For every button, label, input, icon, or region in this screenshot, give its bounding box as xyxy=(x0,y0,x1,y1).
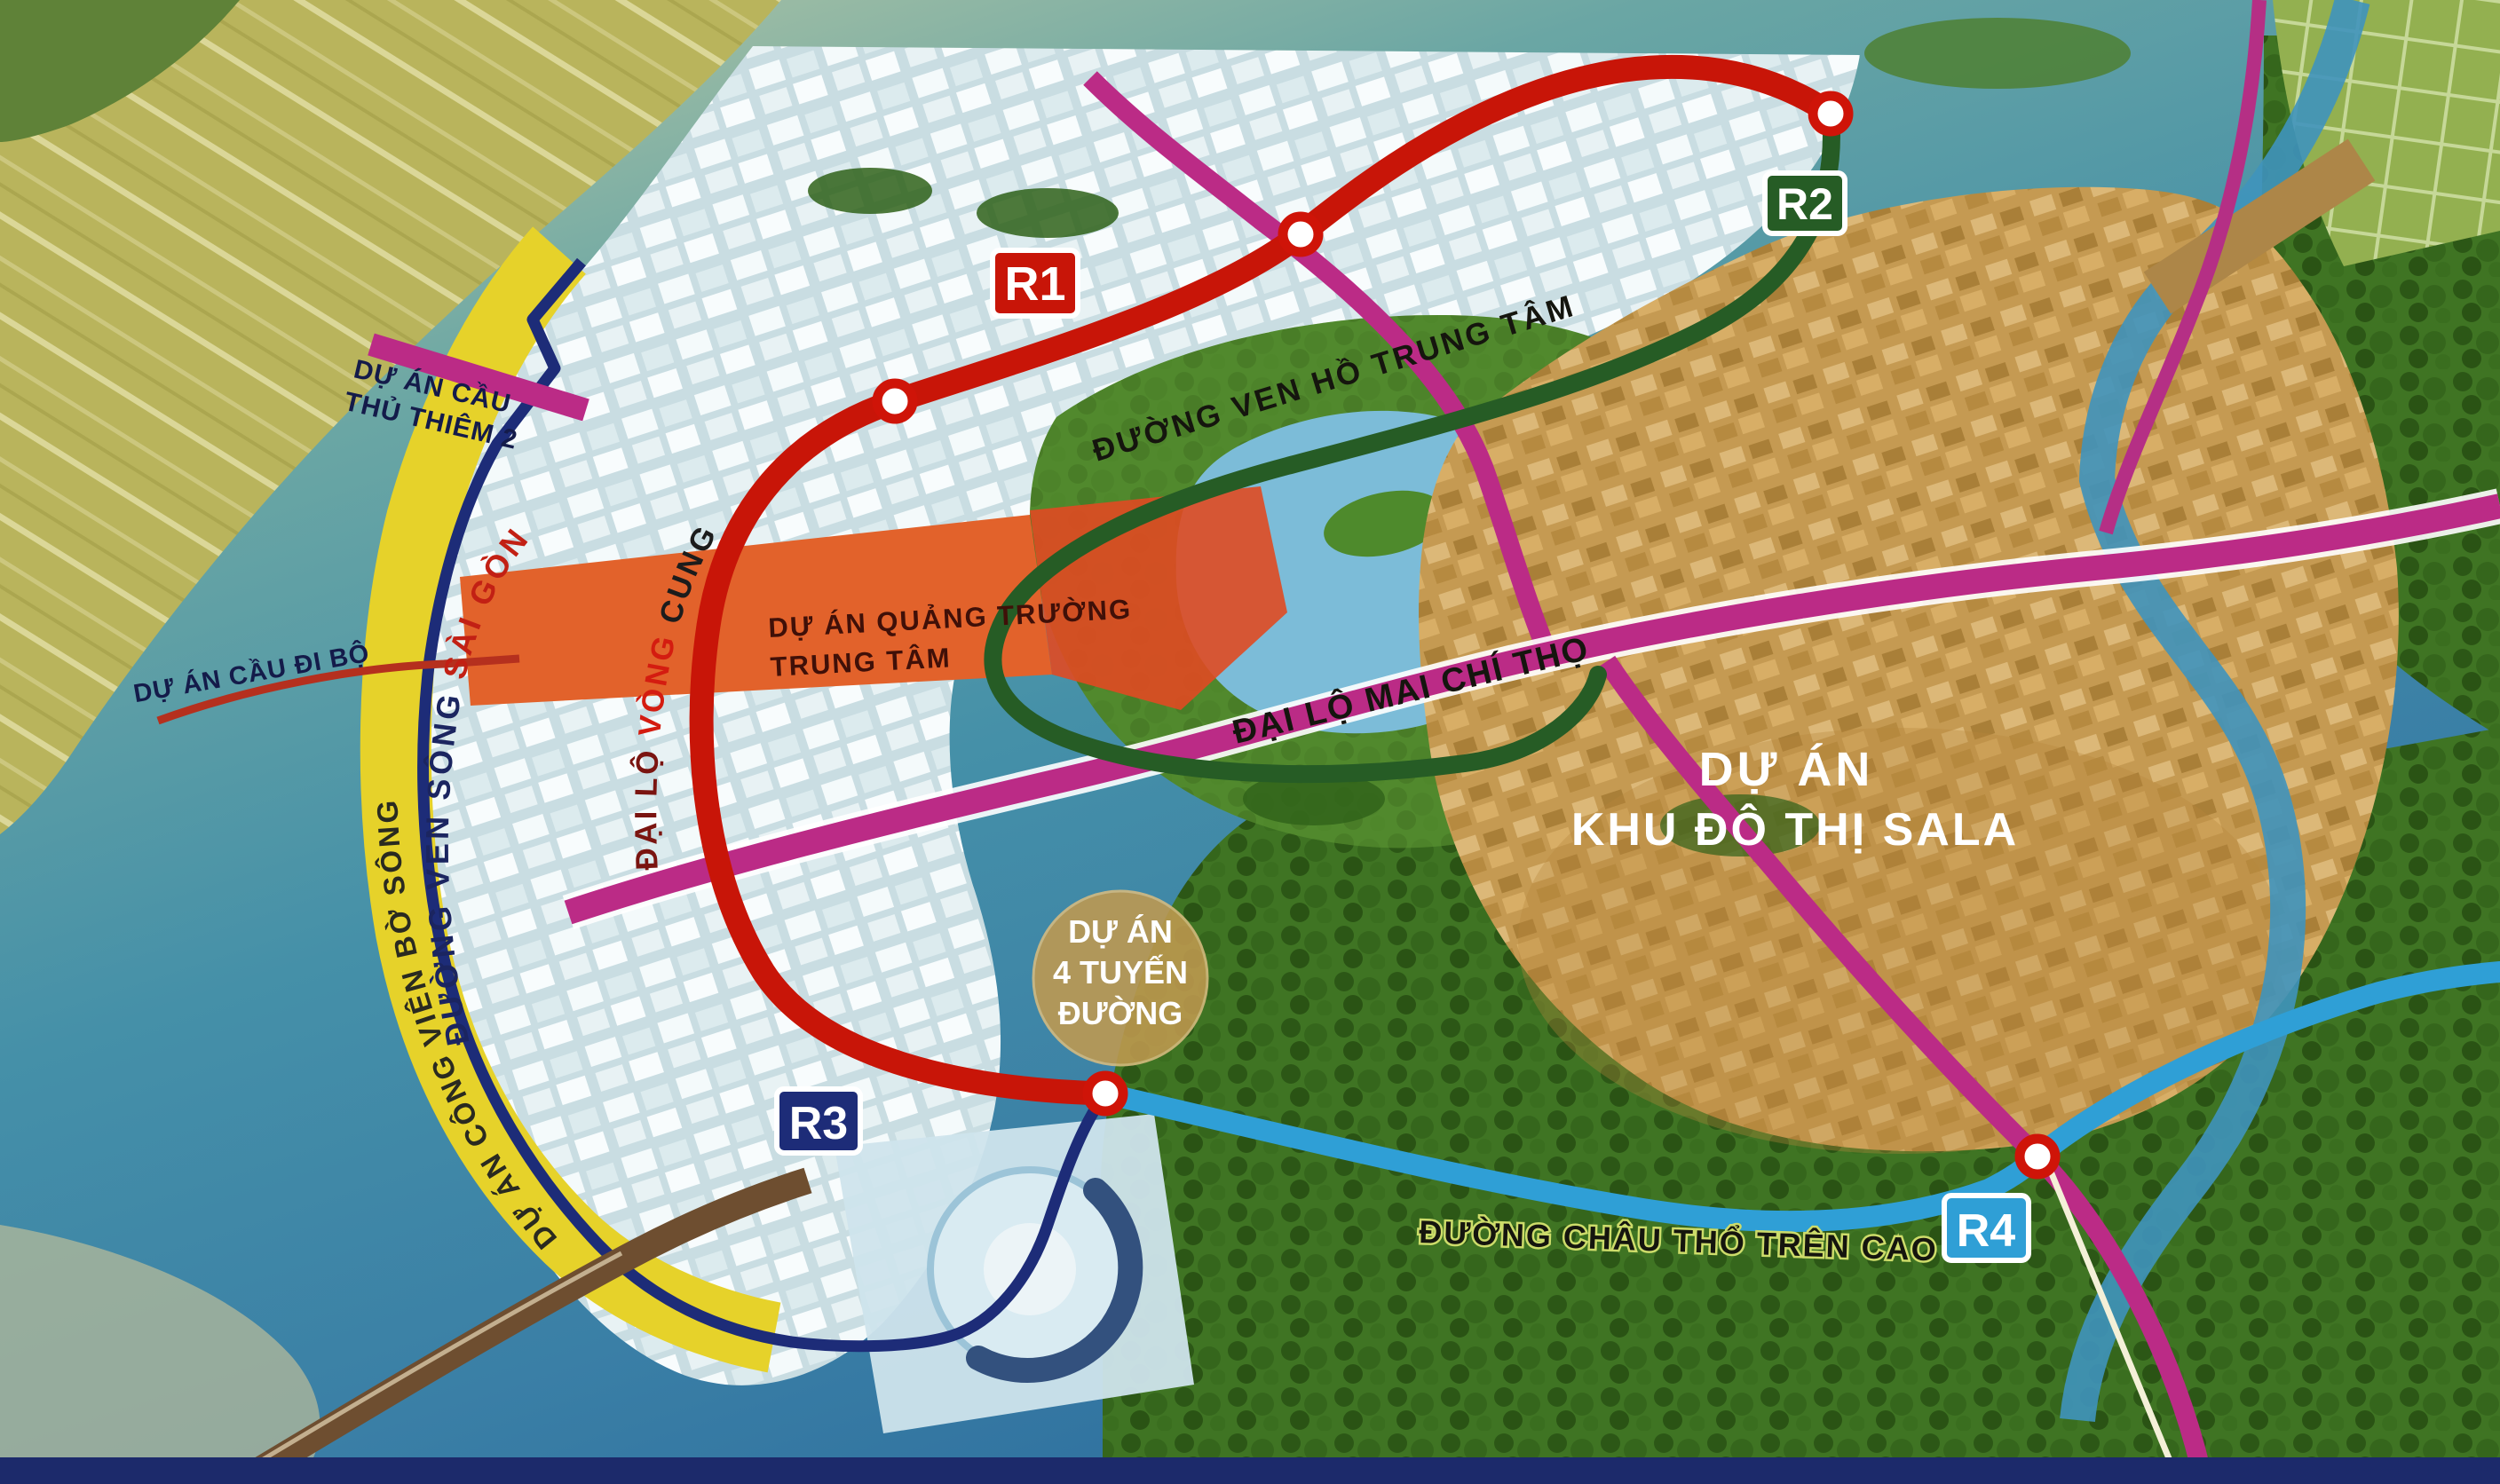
junction-node xyxy=(1088,1076,1123,1111)
tree-cluster xyxy=(808,168,932,214)
svg-text:DỰ ÁN: DỰ ÁN xyxy=(1068,913,1173,950)
junction-node xyxy=(1283,217,1318,252)
badge-r4: R4 xyxy=(1944,1196,2029,1260)
svg-text:R4: R4 xyxy=(1957,1205,2016,1257)
badge-r3: R3 xyxy=(777,1089,860,1153)
thu-thiem-planning-map: ĐƯỜNG VEN HỒ TRUNG TÂM ĐẠI LỘ MAI CHÍ TH… xyxy=(0,0,2500,1484)
svg-text:R3: R3 xyxy=(789,1098,848,1149)
map-canvas: ĐƯỜNG VEN HỒ TRUNG TÂM ĐẠI LỘ MAI CHÍ TH… xyxy=(0,0,2500,1484)
badge-r2: R2 xyxy=(1765,173,1845,233)
svg-text:KHU ĐÔ THỊ SALA: KHU ĐÔ THỊ SALA xyxy=(1571,803,2019,856)
badge-du-an-4-tuyen-duong: DỰ ÁN 4 TUYẾN ĐƯỜNG xyxy=(1033,891,1207,1065)
svg-text:ĐƯỜNG: ĐƯỜNG xyxy=(1058,994,1183,1031)
tree-cluster xyxy=(1864,18,2131,89)
junction-node xyxy=(877,383,913,419)
sala-dense-core xyxy=(1518,728,2282,1154)
svg-text:R2: R2 xyxy=(1776,179,1833,229)
badge-r1: R1 xyxy=(993,250,1078,316)
svg-text:DỰ ÁN: DỰ ÁN xyxy=(1699,743,1874,796)
junction-node xyxy=(1813,96,1848,131)
tree-cluster xyxy=(977,188,1119,238)
junction-node xyxy=(2020,1139,2055,1174)
svg-text:4 TUYẾN: 4 TUYẾN xyxy=(1053,954,1188,991)
svg-text:R1: R1 xyxy=(1004,257,1065,311)
map-bottom-border xyxy=(0,1457,2500,1484)
